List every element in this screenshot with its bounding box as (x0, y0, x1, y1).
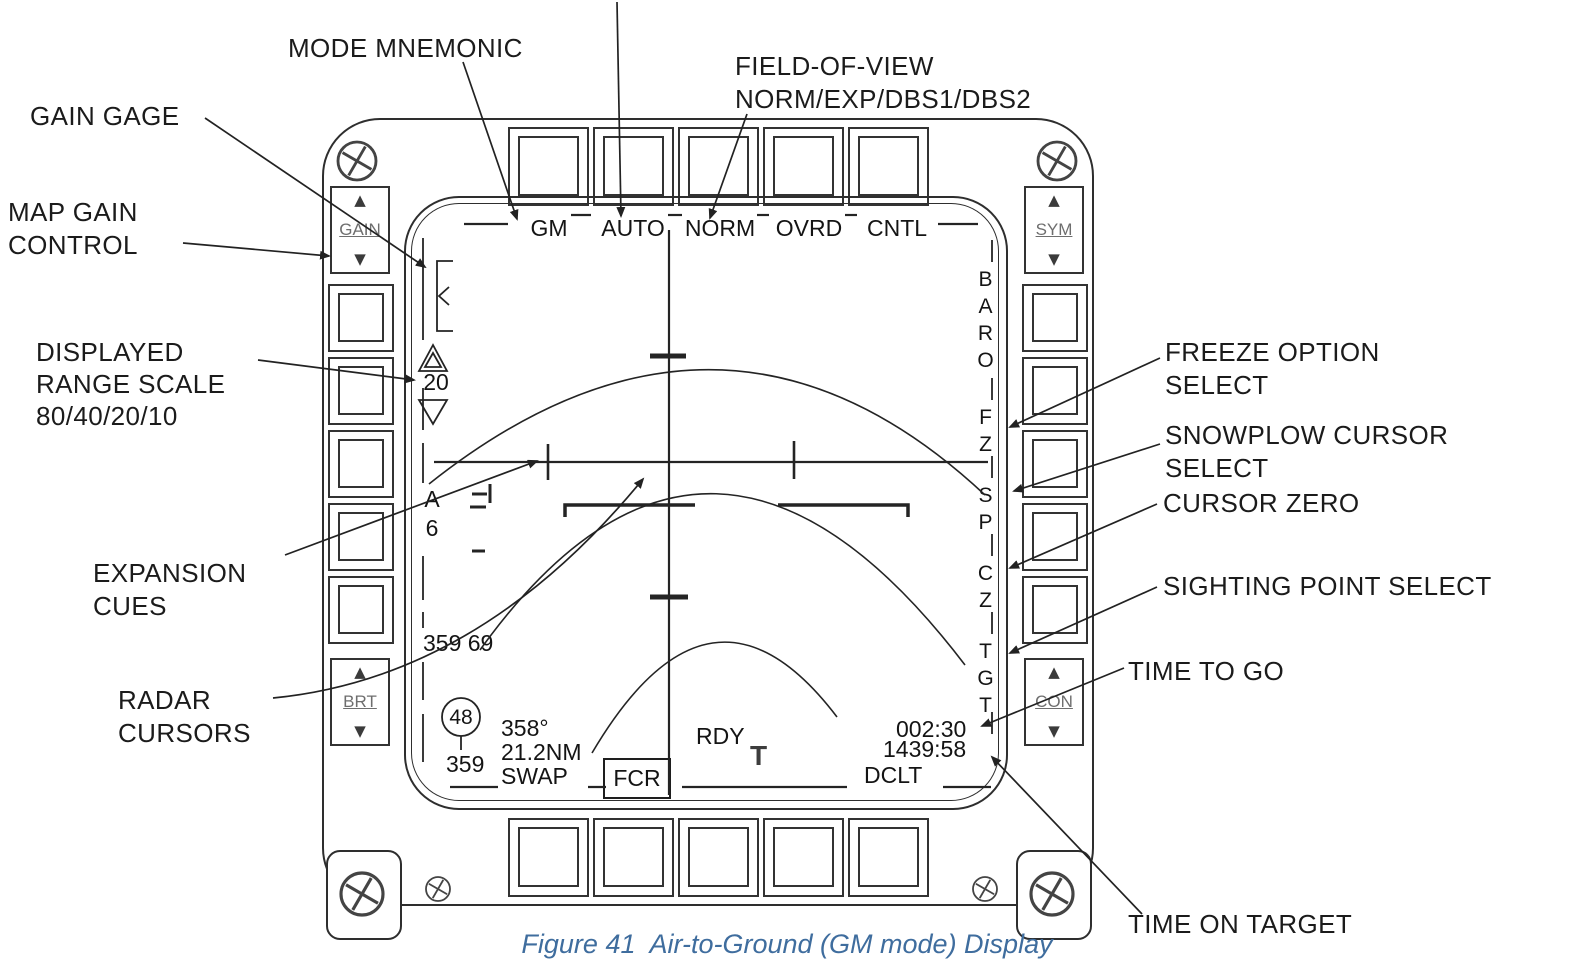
osb-button-face (688, 136, 749, 196)
callout-expansion-2: CUES (93, 590, 167, 622)
cursor-zero-option: CZ (973, 562, 997, 616)
callout-time-on-target: TIME ON TARGET (1128, 908, 1352, 940)
osb-button-right-4[interactable] (1022, 503, 1088, 571)
callout-map-gain-2: CONTROL (8, 229, 138, 261)
osb-button-right-2[interactable] (1022, 357, 1088, 425)
callout-radar-cursors-2: CURSORS (118, 717, 251, 749)
osb-button-right-1[interactable] (1022, 284, 1088, 352)
osb-button-face (518, 827, 579, 887)
osb-button-top-4[interactable] (763, 127, 844, 206)
osb-button-bottom-4[interactable] (763, 818, 844, 897)
osb-button-left-3[interactable] (328, 430, 394, 498)
range-scale-value: 20 (423, 370, 449, 395)
osb-button-face (858, 827, 919, 887)
osb-label-ovrd: OVRD (776, 216, 842, 241)
time-on-target-value: 1439:58 (883, 737, 966, 762)
baro-option: BARO (973, 268, 997, 376)
callout-freeze-1: FREEZE OPTION (1165, 336, 1380, 368)
freeze-option: FZ (973, 406, 997, 460)
gain-rocker[interactable]: ▲ GAIN ▼ (330, 186, 390, 274)
up-arrow-icon: ▲ (1048, 665, 1060, 680)
osb-button-left-2[interactable] (328, 357, 394, 425)
osb-button-right-5[interactable] (1022, 576, 1088, 644)
osb-button-right-3[interactable] (1022, 430, 1088, 498)
osb-button-face (338, 366, 384, 415)
callout-field-of-view-options: NORM/EXP/DBS1/DBS2 (735, 83, 1031, 115)
figure-caption: Figure 41 Air-to-Ground (GM mode) Displa… (521, 929, 1052, 960)
con-rocker-label: CON (1035, 693, 1073, 711)
steerpoint-number: 6 (426, 516, 439, 541)
osb-button-face (858, 136, 919, 196)
osb-button-face (1032, 439, 1078, 488)
down-arrow-icon: ▼ (1048, 724, 1060, 739)
osb-button-face (338, 585, 384, 634)
callout-snowplow-2: SELECT (1165, 452, 1269, 484)
osb-button-top-1[interactable] (508, 127, 589, 206)
callout-radar-cursors-1: RADAR (118, 684, 211, 716)
con-rocker[interactable]: ▲ CON ▼ (1024, 658, 1084, 746)
osb-label-mode: GM (530, 216, 567, 241)
osb-button-left-4[interactable] (328, 503, 394, 571)
callout-gain-gage: GAIN GAGE (30, 100, 180, 132)
down-arrow-icon: ▼ (354, 252, 366, 267)
callout-snowplow-1: SNOWPLOW CURSOR (1165, 419, 1448, 451)
osb-button-face (1032, 512, 1078, 561)
osb-label-cntl: CNTL (867, 216, 927, 241)
callout-cursor-zero: CURSOR ZERO (1163, 487, 1360, 519)
osb-button-face (518, 136, 579, 196)
dclt-label: DCLT (864, 763, 922, 788)
callout-freeze-2: SELECT (1165, 369, 1269, 401)
snowplow-option: SP (973, 484, 997, 538)
swap-label: SWAP (501, 764, 568, 789)
brt-rocker-label: BRT (343, 693, 377, 711)
up-arrow-icon: ▲ (354, 193, 366, 208)
osb-button-face (603, 136, 664, 196)
callout-map-gain: MAP GAIN (8, 196, 138, 228)
callout-expansion-1: EXPANSION (93, 557, 246, 589)
osb-button-left-5[interactable] (328, 576, 394, 644)
osb-button-left-1[interactable] (328, 284, 394, 352)
osb-button-top-2[interactable] (593, 127, 674, 206)
cursor-range: 21.2NM (501, 740, 582, 765)
callout-displayed-range-3: 80/40/20/10 (36, 400, 178, 432)
osb-button-face (338, 293, 384, 342)
rdy-status: RDY (696, 724, 745, 749)
gain-value: 48 (449, 705, 472, 730)
sym-rocker-label: SYM (1036, 221, 1073, 239)
osb-button-face (1032, 366, 1078, 415)
callout-time-to-go: TIME TO GO (1128, 655, 1284, 687)
osb-button-face (603, 827, 664, 887)
up-arrow-icon: ▲ (354, 665, 366, 680)
fcr-label: FCR (613, 765, 660, 791)
osb-button-bottom-2[interactable] (593, 818, 674, 897)
bezel-corner-tab-left (326, 850, 402, 940)
figure-air-to-ground-gm-display: ▲ GAIN ▼ ▲ SYM ▼ ▲ BRT ▼ ▲ CON ▼ GM AUTO… (0, 0, 1587, 975)
osb-button-bottom-1[interactable] (508, 818, 589, 897)
up-arrow-icon: ▲ (1048, 193, 1060, 208)
sym-rocker[interactable]: ▲ SYM ▼ (1024, 186, 1084, 274)
osb-button-face (1032, 585, 1078, 634)
callout-displayed-range-1: DISPLAYED (36, 336, 184, 368)
osb-button-face (338, 512, 384, 561)
gain-sub-value: 359 (446, 752, 484, 777)
osb-button-face (1032, 293, 1078, 342)
osb-button-top-5[interactable] (848, 127, 929, 206)
osb-button-face (338, 439, 384, 488)
gain-rocker-label: GAIN (339, 221, 381, 239)
radar-display-inner-bezel (411, 203, 999, 801)
osb-button-face (773, 827, 834, 887)
cursor-position-readout: 359 69 (423, 631, 493, 656)
osb-button-top-3[interactable] (678, 127, 759, 206)
bezel-corner-tab-right (1016, 850, 1092, 940)
fcr-box: FCR (603, 758, 671, 799)
callout-displayed-range-2: RANGE SCALE (36, 368, 225, 400)
callout-sighting-point: SIGHTING POINT SELECT (1163, 570, 1492, 602)
callout-field-of-view: FIELD-OF-VIEW (735, 50, 934, 82)
osb-button-bottom-5[interactable] (848, 818, 929, 897)
steerpoint-letter: A (424, 487, 439, 512)
brt-rocker[interactable]: ▲ BRT ▼ (330, 658, 390, 746)
osb-button-bottom-3[interactable] (678, 818, 759, 897)
osb-button-face (688, 827, 749, 887)
callout-mode-mnemonic: MODE MNEMONIC (288, 32, 523, 64)
down-arrow-icon: ▼ (354, 724, 366, 739)
sighting-point-option: TGT (973, 640, 997, 721)
target-designator-symbol: T (750, 743, 767, 768)
down-arrow-icon: ▼ (1048, 252, 1060, 267)
osb-label-submode: AUTO (601, 216, 664, 241)
osb-label-fov: NORM (685, 216, 755, 241)
leader-map-gain (183, 243, 329, 256)
osb-button-face (773, 136, 834, 196)
cursor-bearing: 358° (501, 716, 549, 741)
